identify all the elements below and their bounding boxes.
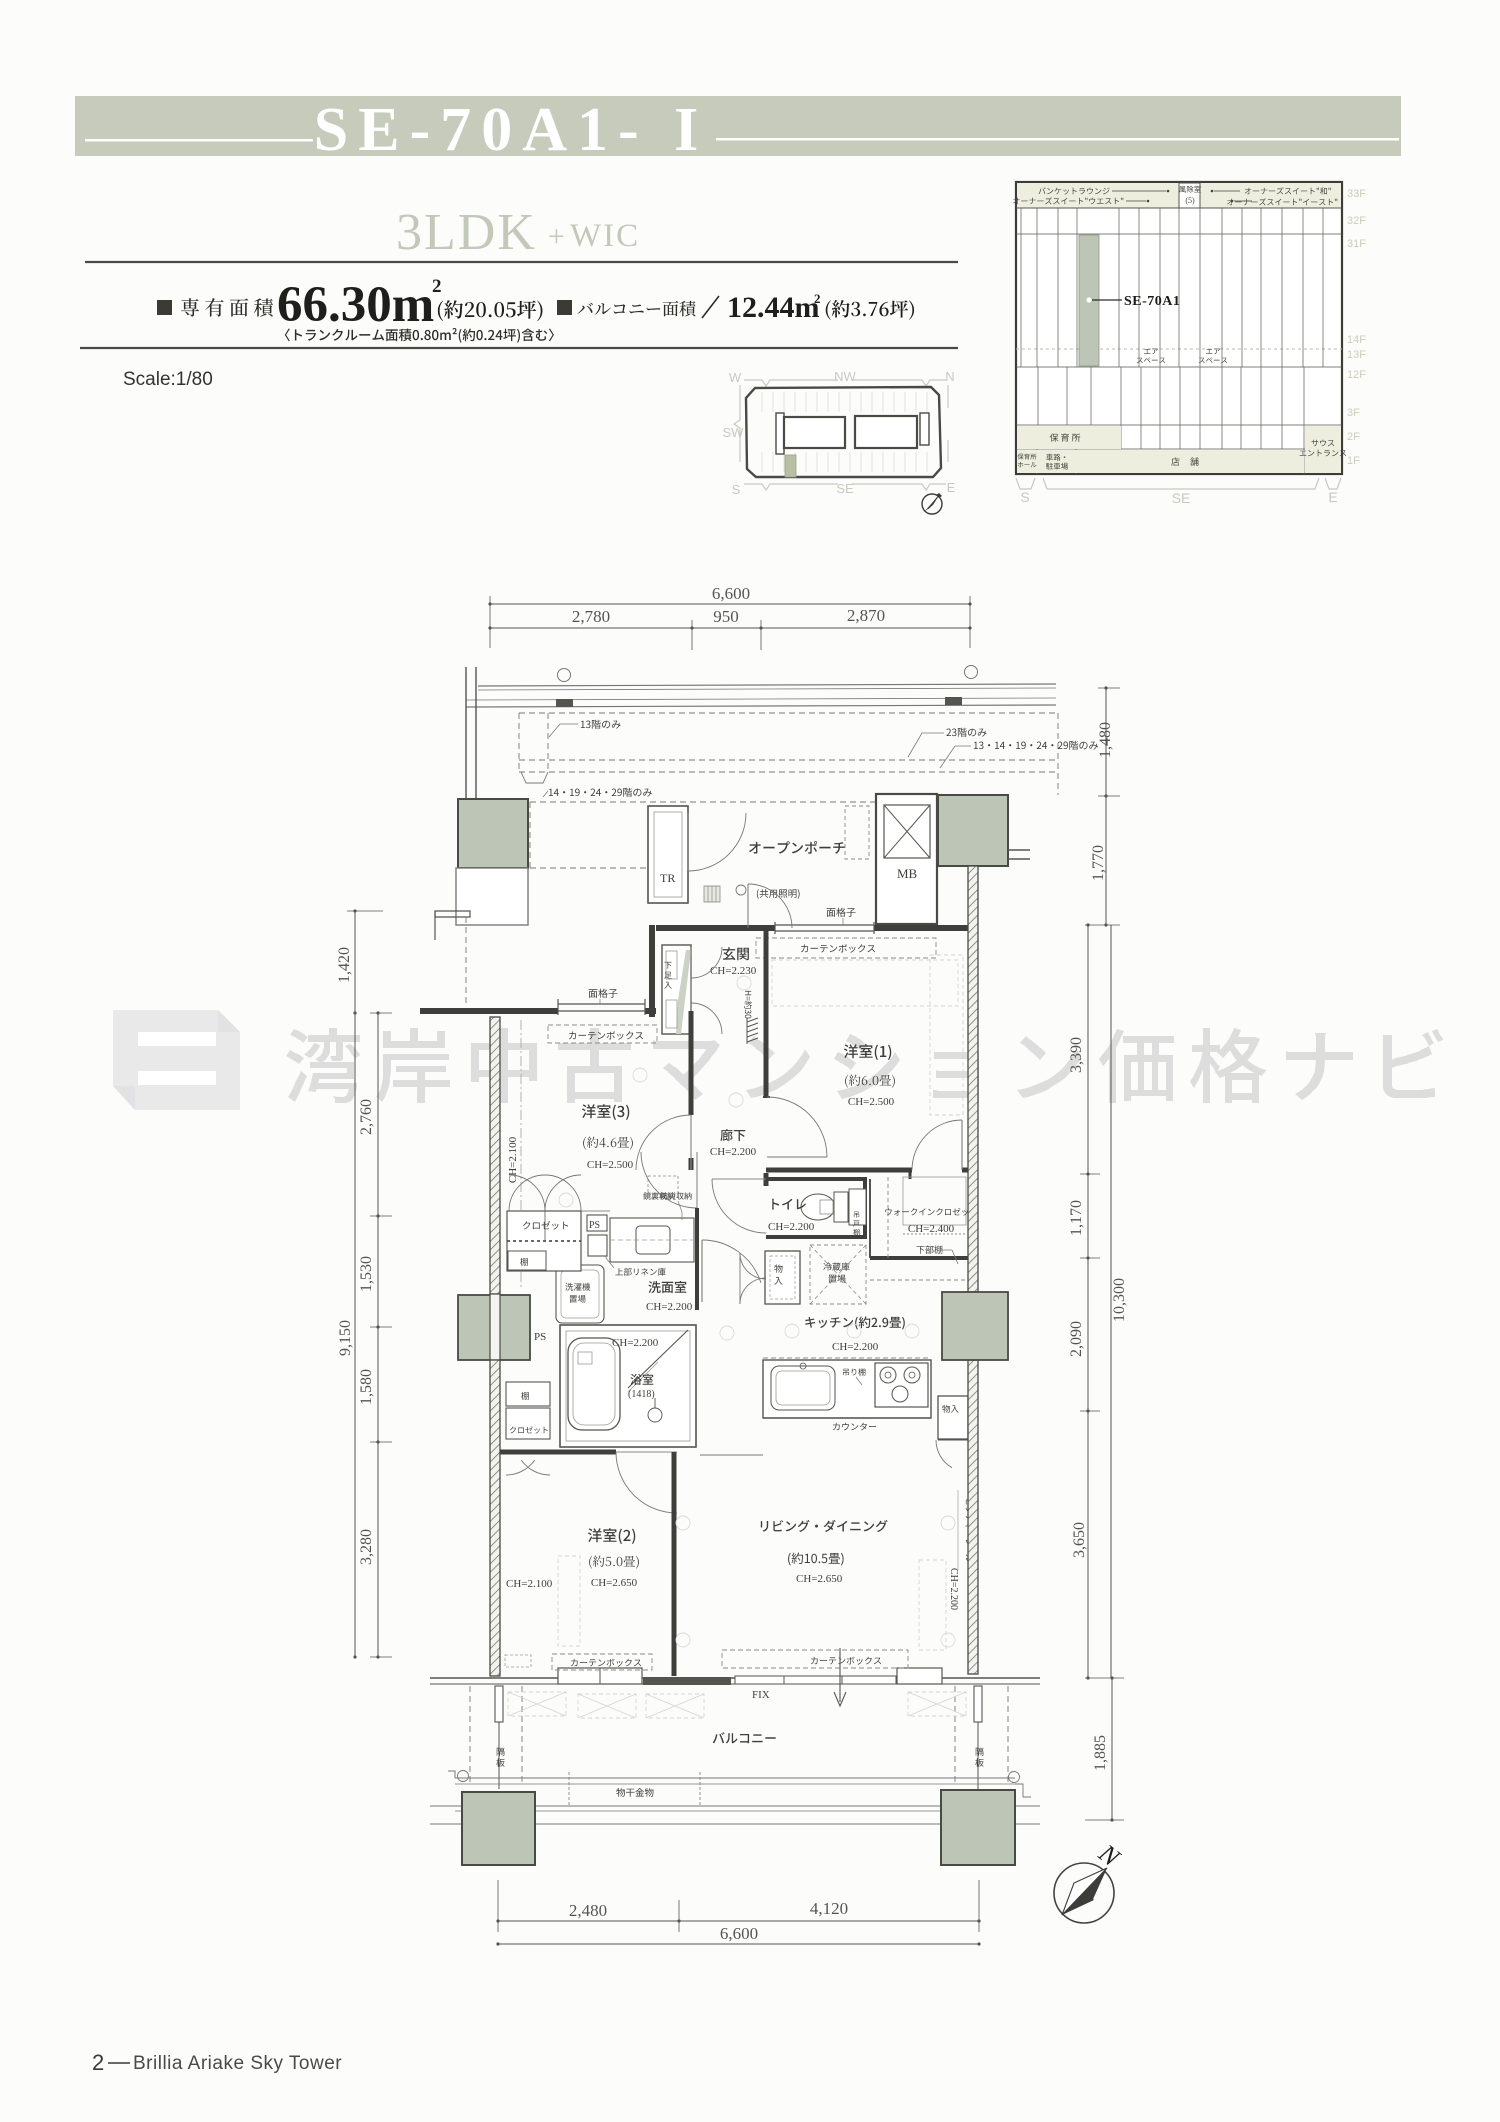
svg-text:NW: NW — [834, 369, 856, 384]
svg-text:1,170: 1,170 — [1068, 1200, 1085, 1236]
svg-text:2: 2 — [92, 2050, 104, 2075]
svg-text:13F: 13F — [1347, 349, 1366, 361]
svg-text:12F: 12F — [1347, 369, 1366, 381]
svg-text:2,480: 2,480 — [569, 1901, 607, 1920]
svg-text:2: 2 — [432, 276, 442, 297]
svg-text:CH=2.650: CH=2.650 — [591, 1577, 638, 1589]
svg-text:SE: SE — [836, 481, 854, 496]
svg-text:32F: 32F — [1347, 215, 1366, 227]
svg-text:2F: 2F — [1347, 431, 1360, 443]
svg-text:1,530: 1,530 — [358, 1256, 375, 1292]
svg-text:2,760: 2,760 — [358, 1099, 375, 1135]
svg-text:1,770: 1,770 — [1090, 845, 1107, 881]
svg-text:3,650: 3,650 — [1071, 1522, 1088, 1558]
svg-text:9,150: 9,150 — [337, 1320, 354, 1356]
svg-text:(1418): (1418) — [628, 1389, 655, 1400]
svg-text:CH=2.200: CH=2.200 — [612, 1337, 659, 1349]
svg-text:MB: MB — [897, 866, 918, 881]
svg-text:W: W — [729, 370, 742, 385]
svg-text:3,390: 3,390 — [1068, 1037, 1085, 1073]
svg-text:CH=2.500: CH=2.500 — [848, 1096, 895, 1108]
svg-text:TR: TR — [660, 871, 675, 885]
svg-text:3,280: 3,280 — [358, 1529, 375, 1565]
svg-text:CH=2.200: CH=2.200 — [832, 1341, 879, 1353]
svg-text:2: 2 — [814, 291, 821, 306]
svg-text:(5): (5) — [1185, 196, 1195, 205]
svg-text:E: E — [1328, 489, 1337, 505]
svg-text:SE-70A1- I: SE-70A1- I — [314, 96, 709, 164]
svg-text:CH=2.500: CH=2.500 — [587, 1159, 634, 1171]
svg-text:SE-70A1: SE-70A1 — [1124, 294, 1180, 309]
svg-text:N: N — [945, 369, 954, 384]
svg-text:Scale:1/80: Scale:1/80 — [123, 369, 213, 390]
svg-text:950: 950 — [713, 607, 739, 626]
svg-text:6,600: 6,600 — [712, 584, 750, 603]
svg-text:FIX: FIX — [752, 1689, 770, 1701]
svg-text:1,885: 1,885 — [1092, 1735, 1109, 1771]
svg-text:66.30m: 66.30m — [277, 277, 434, 333]
svg-text:CH=2.400: CH=2.400 — [908, 1223, 955, 1235]
svg-text:CH=2.200: CH=2.200 — [710, 1146, 757, 1158]
svg-text:2,870: 2,870 — [847, 606, 885, 625]
svg-text:14F: 14F — [1347, 334, 1366, 346]
svg-text:E: E — [947, 480, 956, 495]
svg-text:+: + — [548, 220, 565, 253]
svg-text:CH=2.650: CH=2.650 — [796, 1573, 843, 1585]
svg-text:6,600: 6,600 — [720, 1924, 758, 1943]
svg-text:2,090: 2,090 — [1068, 1321, 1085, 1357]
svg-text:3LDK: 3LDK — [396, 204, 537, 261]
svg-text:PS: PS — [589, 1220, 600, 1231]
svg-text:3F: 3F — [1347, 407, 1360, 419]
svg-text:CH=2.230: CH=2.230 — [710, 965, 757, 977]
svg-text:4,120: 4,120 — [810, 1899, 848, 1918]
svg-text:Brillia Ariake Sky Tower: Brillia Ariake Sky Tower — [133, 2053, 342, 2074]
svg-text:33F: 33F — [1347, 188, 1366, 200]
svg-text:31F: 31F — [1347, 238, 1366, 250]
svg-text:10,300: 10,300 — [1111, 1278, 1128, 1322]
svg-text:1,420: 1,420 — [336, 947, 353, 983]
svg-text:N: N — [1093, 1838, 1127, 1873]
svg-text:CH=2.200: CH=2.200 — [948, 1568, 959, 1610]
svg-text:WIC: WIC — [570, 218, 640, 254]
svg-text:12.44m: 12.44m — [727, 291, 820, 324]
svg-text:PS: PS — [534, 1331, 546, 1343]
svg-text:1F: 1F — [1347, 455, 1360, 467]
svg-text:SE: SE — [1172, 490, 1191, 506]
svg-text:CH=2.200: CH=2.200 — [768, 1221, 815, 1233]
svg-text:1,580: 1,580 — [358, 1369, 375, 1405]
svg-text:S: S — [732, 482, 741, 497]
svg-text:2,780: 2,780 — [572, 607, 610, 626]
svg-text:1,480: 1,480 — [1097, 722, 1114, 758]
svg-text:S: S — [1020, 489, 1029, 505]
svg-text:CH=2.100: CH=2.100 — [506, 1578, 553, 1590]
svg-text:CH=2.200: CH=2.200 — [646, 1301, 693, 1313]
svg-text:SW: SW — [723, 425, 745, 440]
